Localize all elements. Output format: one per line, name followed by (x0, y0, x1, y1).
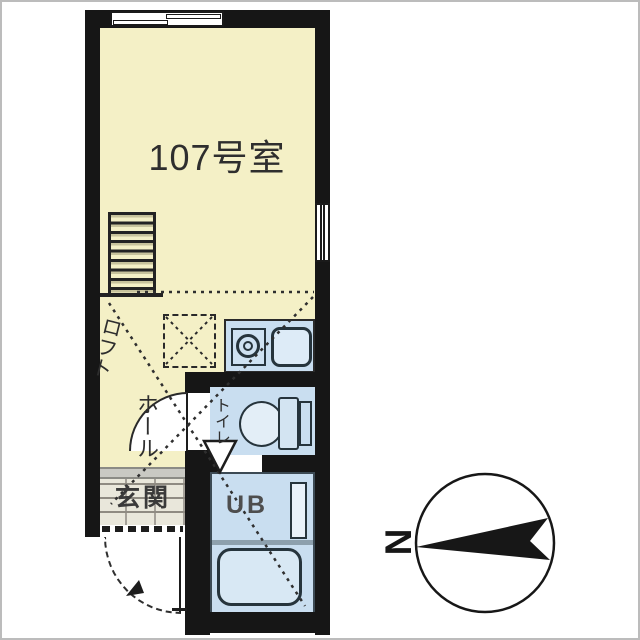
sliding-window-top-icon (110, 11, 224, 27)
floor-plan-canvas: 107号室 ロフト ホール 玄関 トイレ UB N (0, 0, 640, 640)
bath-doorway-gap (218, 455, 262, 472)
kitchen-stove-icon (231, 328, 266, 366)
compass-arrow-icon (416, 518, 550, 560)
entrance-door-stop-tick (172, 608, 187, 611)
entrance-threshold-dashes (102, 525, 183, 533)
toilet-side-bracket (299, 401, 312, 446)
entrance-door-swing-icon (104, 537, 181, 614)
wall-east (315, 10, 330, 635)
wall-west (85, 10, 100, 537)
toilet-tank-icon (278, 397, 299, 450)
loft-ladder-base (100, 293, 163, 297)
window-pane-right (166, 14, 221, 19)
loft-hatch-dashed-box (163, 314, 216, 368)
bath-divider-line (212, 540, 313, 545)
kitchen-sink-icon (271, 327, 312, 367)
bathtub-icon (217, 548, 302, 606)
sliding-window-right-icon (315, 203, 330, 262)
wall-south (185, 612, 330, 633)
kitchen-counter (224, 319, 315, 373)
toilet-doorway-gap (185, 393, 210, 450)
bath-vanity-icon (290, 482, 307, 539)
unit-bath-label: UB (221, 491, 273, 519)
stove-burner-inner-ring (243, 341, 253, 351)
window-mullion (320, 205, 325, 260)
room-number-label: 107号室 (122, 136, 312, 180)
window-pane-left (113, 20, 168, 25)
entrance-label: 玄関 (104, 483, 182, 513)
hall-label: ホール (134, 382, 162, 470)
loft-ladder-icon (108, 212, 156, 295)
toilet-label: トイレ (208, 386, 232, 456)
compass-icon (405, 465, 575, 625)
compass-north-label: N (377, 522, 421, 562)
